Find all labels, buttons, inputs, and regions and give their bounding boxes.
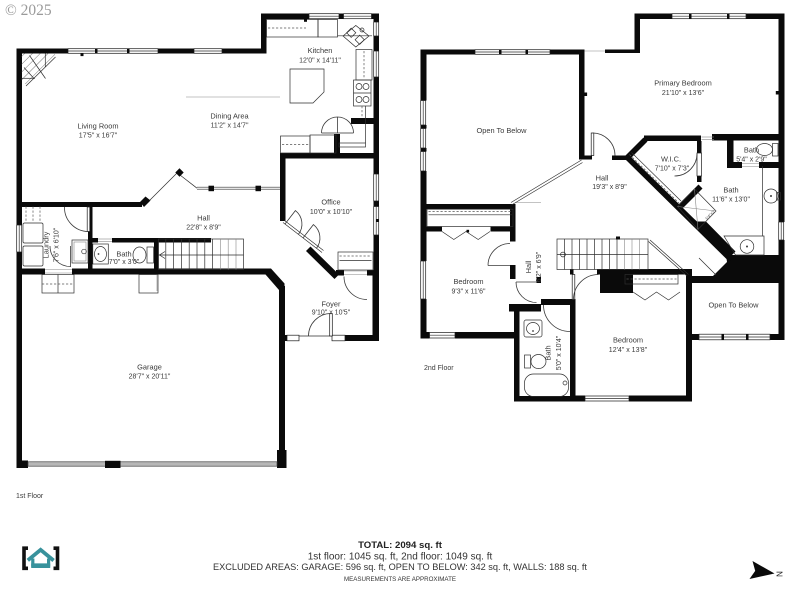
svg-text:Open To Below: Open To Below xyxy=(477,126,528,135)
svg-text:6'2" x 6'9": 6'2" x 6'9" xyxy=(536,251,543,282)
svg-text:Bath: Bath xyxy=(744,146,759,155)
svg-text:Hall: Hall xyxy=(596,174,609,183)
svg-text:N: N xyxy=(775,571,784,577)
svg-text:Garage: Garage xyxy=(137,363,162,372)
svg-text:W.I.C.: W.I.C. xyxy=(661,155,681,164)
svg-text:Foyer: Foyer xyxy=(322,300,341,309)
svg-text:1st Floor: 1st Floor xyxy=(16,493,44,500)
svg-text:Bath: Bath xyxy=(723,186,738,195)
svg-text:10'0" x 10'10": 10'0" x 10'10" xyxy=(310,209,353,216)
svg-text:Laundry: Laundry xyxy=(42,231,51,258)
svg-text:12'4" x 13'8": 12'4" x 13'8" xyxy=(609,347,648,354)
svg-text:12'0" x 14'11": 12'0" x 14'11" xyxy=(299,58,341,65)
svg-text:11'6" x 13'0": 11'6" x 13'0" xyxy=(712,197,750,204)
svg-text:Hall: Hall xyxy=(197,214,210,223)
svg-text:TOTAL: 2094 sq. ft: TOTAL: 2094 sq. ft xyxy=(358,540,443,551)
svg-text:1st floor: 1045 sq. ft, 2nd fl: 1st floor: 1045 sq. ft, 2nd floor: 1049 … xyxy=(308,552,493,563)
svg-text:22'8" x 8'9": 22'8" x 8'9" xyxy=(186,225,221,232)
svg-text:Living Room: Living Room xyxy=(77,122,118,131)
svg-text:Kitchen: Kitchen xyxy=(308,46,333,55)
svg-text:MEASUREMENTS ARE APPROXIMATE: MEASUREMENTS ARE APPROXIMATE xyxy=(344,576,456,583)
svg-text:19'3" x 8'9": 19'3" x 8'9" xyxy=(592,184,627,191)
svg-text:EXCLUDED AREAS: GARAGE: 596 sq: EXCLUDED AREAS: GARAGE: 596 sq. ft, OPEN… xyxy=(213,562,587,572)
svg-text:Primary Bedroom: Primary Bedroom xyxy=(654,79,712,88)
svg-text:Bedroom: Bedroom xyxy=(613,336,643,345)
svg-text:7'6" x 6'10": 7'6" x 6'10" xyxy=(54,227,61,262)
svg-text:9'3" x 11'6": 9'3" x 11'6" xyxy=(452,289,486,296)
svg-text:Dining Area: Dining Area xyxy=(210,112,249,121)
svg-text:Office: Office xyxy=(321,198,340,207)
svg-text:Bath: Bath xyxy=(116,250,131,259)
svg-text:Open To Below: Open To Below xyxy=(709,301,760,310)
svg-text:2nd Floor: 2nd Floor xyxy=(424,365,454,372)
svg-text:Bath: Bath xyxy=(544,345,553,360)
svg-text:9'10" x 10'5": 9'10" x 10'5" xyxy=(312,310,351,317)
svg-text:21'10" x 13'6": 21'10" x 13'6" xyxy=(662,90,705,97)
svg-text:Hall: Hall xyxy=(524,260,533,273)
svg-text:28'7" x 20'11": 28'7" x 20'11" xyxy=(129,374,171,381)
svg-text:© 2025: © 2025 xyxy=(5,2,52,19)
svg-text:17'5" x 16'7": 17'5" x 16'7" xyxy=(79,133,118,140)
svg-text:5'4" x 2'9": 5'4" x 2'9" xyxy=(736,157,767,164)
svg-text:7'10" x 7'3": 7'10" x 7'3" xyxy=(655,166,690,173)
svg-text:5'0" x 10'4": 5'0" x 10'4" xyxy=(556,335,563,370)
svg-text:7'0" x 3'0": 7'0" x 3'0" xyxy=(109,259,140,266)
svg-text:Bedroom: Bedroom xyxy=(454,277,484,286)
svg-text:11'2" x 14'7": 11'2" x 14'7" xyxy=(211,123,249,130)
